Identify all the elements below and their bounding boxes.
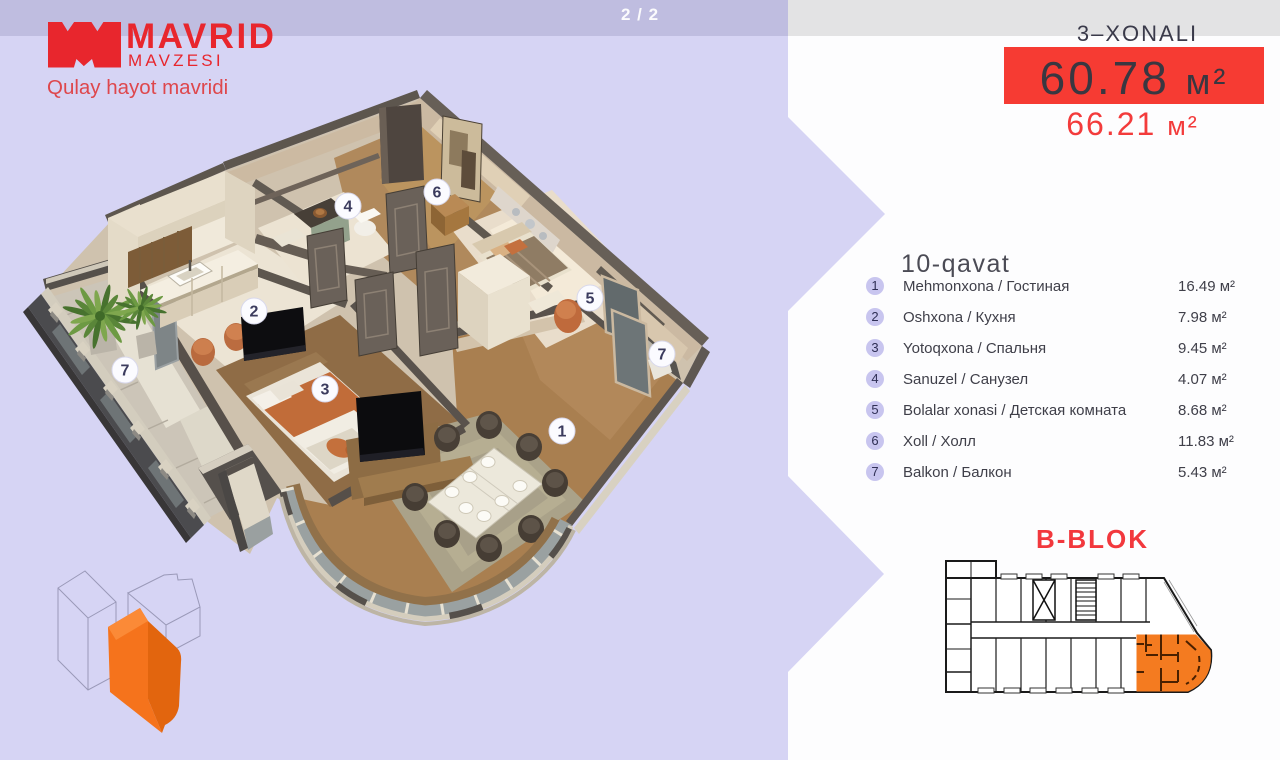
- svg-text:7: 7: [121, 363, 130, 380]
- svg-text:4: 4: [344, 199, 353, 216]
- svg-text:1: 1: [558, 424, 567, 441]
- svg-text:6: 6: [433, 185, 442, 202]
- svg-text:5: 5: [586, 291, 595, 308]
- svg-text:3: 3: [321, 382, 330, 399]
- svg-text:2: 2: [250, 304, 259, 321]
- svg-text:7: 7: [658, 347, 667, 364]
